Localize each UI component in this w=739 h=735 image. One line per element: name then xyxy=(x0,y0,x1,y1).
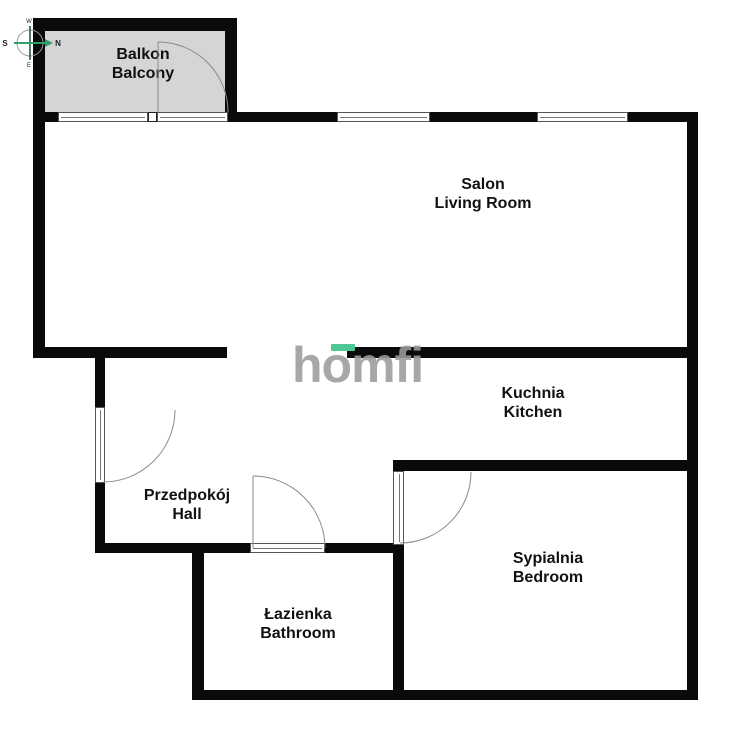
bedroom-door-arc xyxy=(400,472,471,543)
bedroom-label: Sypialnia Bedroom xyxy=(513,549,583,587)
balcony-label-en: Balcony xyxy=(112,64,174,83)
kitchen-label-pl: Kuchnia xyxy=(501,384,564,403)
hall-label-pl: Przedpokój xyxy=(144,486,230,505)
bathroom-label-en: Bathroom xyxy=(260,624,336,643)
window-living-left xyxy=(337,112,430,122)
bedroom-door-opening xyxy=(393,471,404,545)
wall-hall-left-lower xyxy=(95,483,105,553)
bathroom-label: Łazienka Bathroom xyxy=(260,605,336,643)
balcony-label: Balkon Balcony xyxy=(112,45,174,83)
balcony-door-jamb xyxy=(148,112,157,122)
wall-hall-bottom-left xyxy=(95,543,250,553)
window-balcony xyxy=(58,112,148,122)
living-room-label-en: Living Room xyxy=(435,194,532,213)
compass-label-west: W xyxy=(26,19,32,25)
living-room-label: Salon Living Room xyxy=(435,175,532,213)
balcony-label-pl: Balkon xyxy=(112,45,174,64)
kitchen-label-en: Kitchen xyxy=(501,403,564,422)
wall-left-outer xyxy=(33,18,45,358)
floor-plan: homfi Balkon Balcony Salon Living Room K… xyxy=(0,0,739,735)
homfi-logo-macron-accent xyxy=(331,344,355,351)
entry-door-arc xyxy=(103,410,175,482)
wall-living-bottom xyxy=(33,347,227,358)
wall-top-seg-a xyxy=(45,112,58,122)
wall-bottom-outer xyxy=(192,690,698,700)
bathroom-door-opening xyxy=(250,543,325,553)
wall-top-seg-c xyxy=(443,112,537,122)
bedroom-label-pl: Sypialnia xyxy=(513,549,583,568)
living-room-label-pl: Salon xyxy=(435,175,532,194)
bedroom-label-en: Bedroom xyxy=(513,568,583,587)
bathroom-door-arc xyxy=(253,476,325,548)
hall-label-en: Hall xyxy=(144,505,230,524)
wall-balcony-top xyxy=(33,18,237,31)
window-living-right xyxy=(537,112,628,122)
kitchen-label: Kuchnia Kitchen xyxy=(501,384,564,422)
hall-label: Przedpokój Hall xyxy=(144,486,230,524)
compass-label-east: E xyxy=(27,63,31,69)
balcony-door-opening xyxy=(157,112,228,122)
homfi-logo: homfi xyxy=(292,340,423,390)
wall-top-divider xyxy=(430,112,443,122)
entry-door-opening xyxy=(95,407,105,483)
wall-balcony-right xyxy=(225,18,237,122)
wall-bedroom-top xyxy=(393,460,698,471)
wall-right-outer xyxy=(687,112,698,700)
wall-bathroom-left xyxy=(192,543,204,700)
wall-top-seg-b xyxy=(228,112,337,122)
compass-label-south: S xyxy=(2,39,8,48)
bathroom-label-pl: Łazienka xyxy=(260,605,336,624)
wall-bedroom-left xyxy=(393,545,404,700)
